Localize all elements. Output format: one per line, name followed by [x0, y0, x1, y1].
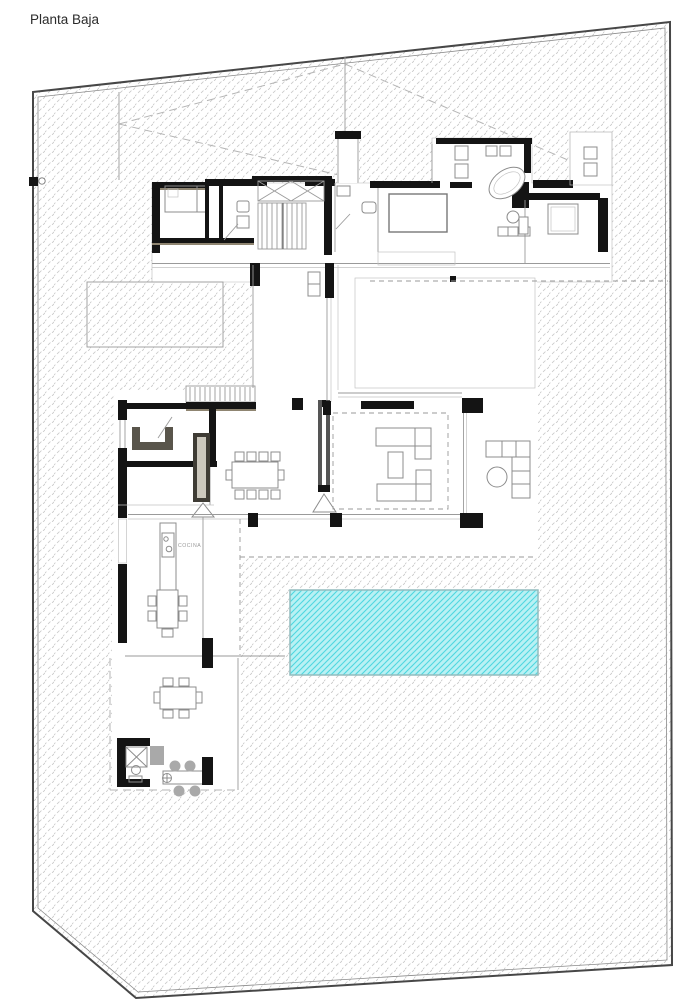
wall-niche: [519, 217, 528, 234]
terrace-floor: [338, 278, 537, 392]
closet-wall: [205, 183, 209, 240]
bar-stool: [190, 786, 201, 797]
gate-post: [29, 177, 38, 186]
column: [202, 757, 213, 785]
kitchen-label: COCINA: [178, 543, 201, 549]
entry-walkway: [335, 131, 361, 183]
deck-column: [202, 638, 213, 668]
floor-plan-page: COCINA Pl: [0, 0, 698, 1000]
utility-marker: [39, 178, 45, 184]
floor-plan-canvas: COCINA Pl: [0, 0, 698, 1000]
swimming-pool: [290, 590, 538, 675]
counter-block: [150, 746, 164, 765]
page-title: Planta Baja: [30, 12, 100, 27]
bar-stool: [174, 786, 185, 797]
bar-stool: [185, 761, 196, 772]
bar-stool: [170, 761, 181, 772]
